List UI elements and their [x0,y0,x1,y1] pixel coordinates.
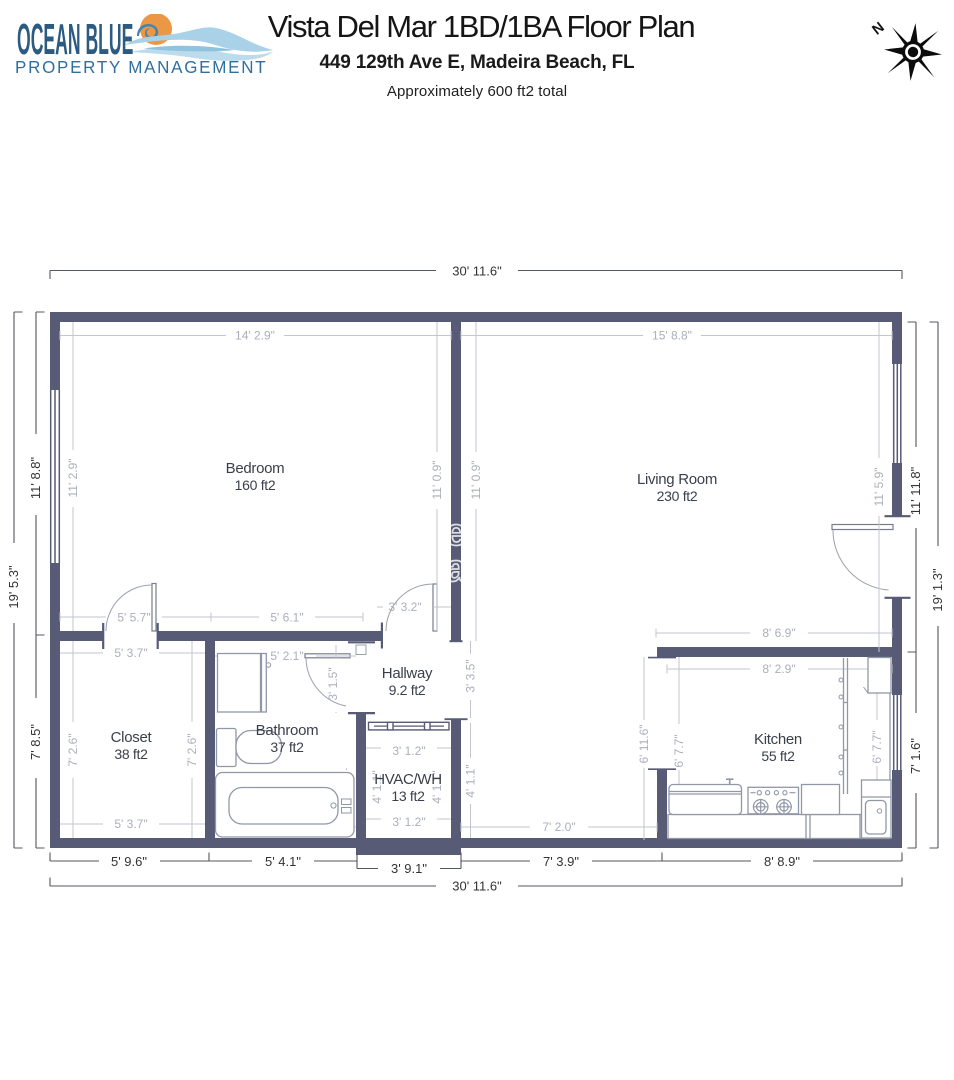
svg-text:6' 7.7": 6' 7.7" [672,734,686,767]
svg-text:Bedroom: Bedroom [226,460,285,477]
svg-text:7' 2.6": 7' 2.6" [185,733,199,766]
svg-text:7' 2.0": 7' 2.0" [542,820,575,834]
svg-text:8' 2.9": 8' 2.9" [762,662,795,676]
svg-text:Bathroom: Bathroom [256,722,319,739]
svg-text:55 ft2: 55 ft2 [761,748,795,764]
svg-text:13 ft2: 13 ft2 [391,788,425,804]
svg-text:11' 0.9": 11' 0.9" [430,460,444,499]
svg-text:a: a [445,548,467,590]
svg-text:11' 11.8": 11' 11.8" [908,466,923,515]
svg-text:30' 11.6": 30' 11.6" [452,264,502,279]
svg-text:Living Room: Living Room [637,471,717,488]
svg-text:3' 1.5": 3' 1.5" [326,667,340,700]
svg-text:7' 8.5": 7' 8.5" [28,724,43,760]
svg-text:3' 1.2": 3' 1.2" [392,744,425,758]
svg-text:5' 3.7": 5' 3.7" [114,817,147,831]
svg-text:7' 3.9": 7' 3.9" [543,854,579,869]
svg-text:11' 2.9": 11' 2.9" [66,458,80,497]
svg-text:9.2 ft2: 9.2 ft2 [389,682,426,698]
svg-text:Kitchen: Kitchen [754,731,802,748]
svg-text:3' 3.2": 3' 3.2" [388,600,421,614]
svg-text:8' 8.9": 8' 8.9" [764,854,800,869]
svg-text:19' 1.3": 19' 1.3" [930,568,945,612]
svg-text:15' 8.8": 15' 8.8" [652,329,692,343]
svg-text:5' 9.6": 5' 9.6" [111,854,147,869]
svg-text:HVAC/WH: HVAC/WH [374,771,442,788]
svg-text:30' 11.6": 30' 11.6" [452,879,502,894]
svg-text:11' 8.8": 11' 8.8" [28,456,43,499]
svg-text:3' 1.2": 3' 1.2" [392,815,425,829]
svg-text:5' 5.7": 5' 5.7" [117,611,150,625]
svg-text:7' 2.6": 7' 2.6" [66,733,80,766]
svg-text:5' 4.1": 5' 4.1" [265,854,301,869]
svg-text:160 ft2: 160 ft2 [235,477,276,493]
svg-text:3' 3.5": 3' 3.5" [464,659,478,692]
svg-text:5' 3.7": 5' 3.7" [114,646,147,660]
svg-text:6' 7.7": 6' 7.7" [870,730,884,763]
svg-text:7' 1.6": 7' 1.6" [908,738,923,774]
svg-text:6' 11.6": 6' 11.6" [637,724,651,763]
svg-text:19' 5.3": 19' 5.3" [6,565,21,609]
svg-text:5' 6.1": 5' 6.1" [270,611,303,625]
svg-text:11' 5.9": 11' 5.9" [872,467,886,506]
svg-text:4' 1.1": 4' 1.1" [464,764,478,797]
svg-text:5' 2.1": 5' 2.1" [270,649,303,663]
svg-text:38 ft2: 38 ft2 [114,746,148,762]
svg-text:14' 2.9": 14' 2.9" [235,329,275,343]
svg-text:230 ft2: 230 ft2 [657,488,698,504]
svg-text:Closet: Closet [111,729,153,746]
svg-text:11' 0.9": 11' 0.9" [469,460,483,499]
svg-text:37 ft2: 37 ft2 [270,739,304,755]
svg-text:8' 6.9": 8' 6.9" [762,626,795,640]
svg-text:3' 9.1": 3' 9.1" [391,861,427,876]
svg-text:Hallway: Hallway [382,665,433,682]
